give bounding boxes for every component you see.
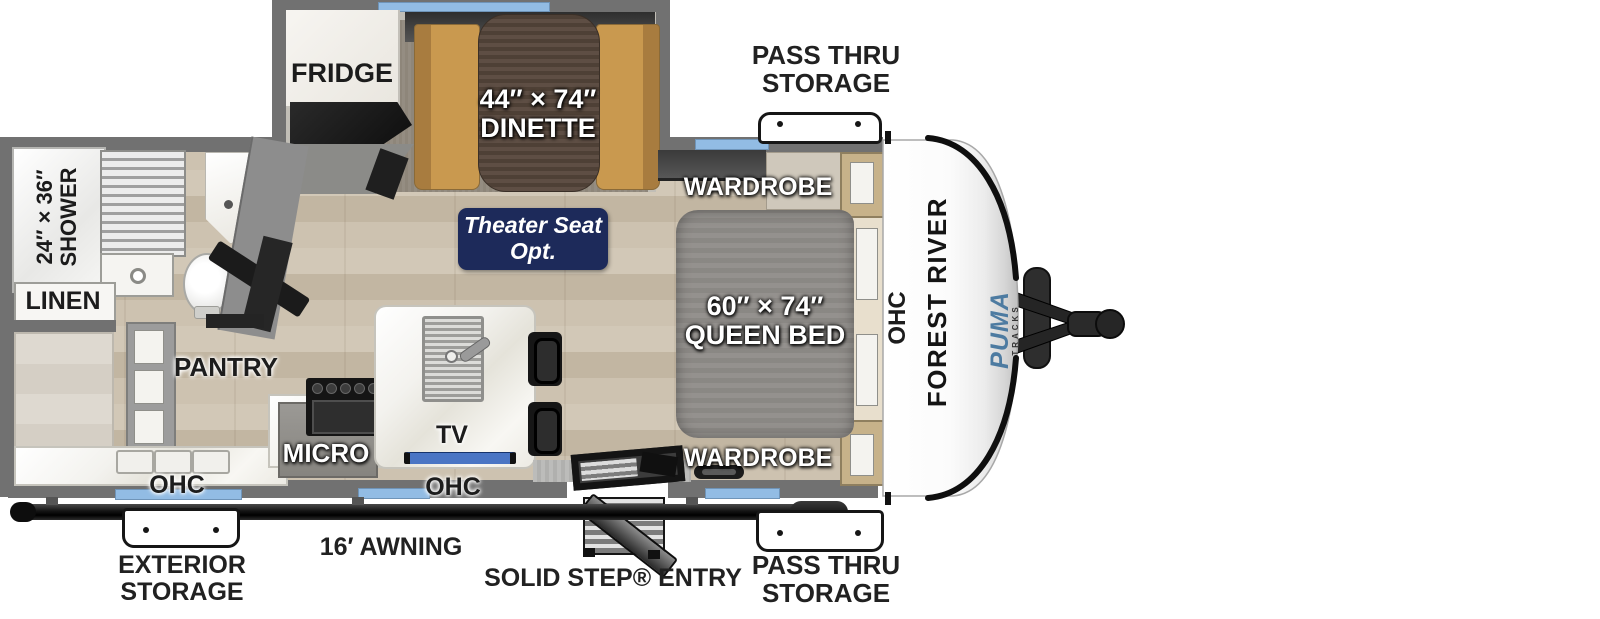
ohc-label-bedroom: OHC xyxy=(886,288,910,348)
hitch-coupler-knob xyxy=(1096,310,1124,338)
wardrobe-label-bottom: WARDROBE xyxy=(682,444,834,472)
step-well-treads xyxy=(580,458,637,481)
awning-text: 16′ AWNING xyxy=(320,534,463,561)
linen-text: LINEN xyxy=(26,288,101,315)
window-slideout xyxy=(378,2,550,12)
queen-name-text: QUEEN BED xyxy=(685,321,846,350)
shower-label: 24″ × 36″ SHOWER xyxy=(31,142,83,292)
forest-river-logo: FOREST RIVER xyxy=(922,177,952,427)
hitch-jack xyxy=(1024,268,1050,368)
awning-label: 16′ AWNING xyxy=(300,532,482,562)
solid-step-entry-label: SOLID STEP® ENTRY xyxy=(468,562,758,594)
awning-bar-left-cap xyxy=(10,502,36,522)
step-foot xyxy=(648,550,660,559)
exterior-storage-door xyxy=(122,508,240,548)
stove-burner xyxy=(340,383,351,394)
latch-dot xyxy=(777,121,783,127)
chair-cushion xyxy=(534,338,560,384)
pass-thru-door-bottom xyxy=(756,510,884,552)
island-chair xyxy=(528,402,562,456)
linen-label: LINEN xyxy=(14,286,112,316)
manufacturer-text: FOREST RIVER xyxy=(923,197,951,407)
step-well-flap xyxy=(639,452,678,477)
dinette-label: 44″ × 74″ DINETTE xyxy=(452,84,624,144)
latch-dot xyxy=(777,530,783,536)
micro-text: MICRO xyxy=(283,439,370,467)
exterior-storage-label: EXTERIOR STORAGE xyxy=(92,552,272,606)
pantry-label: PANTRY xyxy=(172,352,280,382)
bath-blinds-panel xyxy=(100,150,186,257)
wall-linen-divider xyxy=(10,320,116,332)
bath-cabinet-knob xyxy=(130,268,146,284)
pantry-cabinet xyxy=(126,322,176,456)
pantry-text: PANTRY xyxy=(174,353,278,381)
latch-dot xyxy=(213,527,219,533)
island-chair xyxy=(528,332,562,386)
chair-cushion xyxy=(534,408,560,454)
awning-mount-tab xyxy=(46,497,58,505)
step-foot xyxy=(583,548,595,557)
theater-seat-text-1: Theater Seat xyxy=(464,213,602,239)
sink-drain xyxy=(445,350,458,363)
series-text: TRACKS xyxy=(1012,304,1021,355)
ohc-text: OHC xyxy=(885,291,911,344)
fridge-label: FRIDGE xyxy=(288,58,396,90)
bath-vanity-drain xyxy=(224,200,233,209)
window-bottom-right xyxy=(705,488,780,499)
solid-step-text: SOLID STEP® ENTRY xyxy=(484,565,742,592)
ohc-text: OHC xyxy=(425,474,481,501)
awning-mount-tab xyxy=(352,497,364,505)
dinette-size-text: 44″ × 74″ xyxy=(480,85,597,114)
pantry-door xyxy=(134,410,164,444)
stove-burner xyxy=(354,383,365,394)
window-bottom-center xyxy=(358,488,430,499)
ohc-label-kitchen-left: OHC xyxy=(146,471,208,499)
tv-label: TV xyxy=(428,421,476,449)
theater-seat-option-badge: Theater Seat Opt. xyxy=(458,208,608,270)
ohc-text: OHC xyxy=(149,472,205,499)
floorplan-canvas: 44″ × 74″ DINETTE FRIDGE 24″ × 36″ SHOWE… xyxy=(0,0,1600,619)
stove-burner xyxy=(312,383,323,394)
latch-dot xyxy=(855,530,861,536)
latch-dot xyxy=(855,121,861,127)
cap-marker-bottom xyxy=(885,492,891,505)
stove-oven xyxy=(312,400,380,434)
wardrobe-text: WARDROBE xyxy=(684,445,833,472)
fridge-text: FRIDGE xyxy=(291,59,393,88)
tv-text: TV xyxy=(436,422,468,449)
wardrobe-text: WARDROBE xyxy=(684,174,833,201)
pass-thru-door-top xyxy=(758,112,882,144)
pass-thru-text-2: STORAGE xyxy=(762,69,890,97)
pass-thru-text-1: PASS THRU xyxy=(752,41,900,69)
exterior-storage-text-2: STORAGE xyxy=(120,579,243,606)
wardrobe-label-top: WARDROBE xyxy=(682,173,834,201)
tv-unit xyxy=(404,452,516,464)
pass-thru-text-1: PASS THRU xyxy=(752,551,900,579)
cap-marker-top xyxy=(885,131,891,144)
latch-dot xyxy=(143,527,149,533)
queen-bed-label: 60″ × 74″ QUEEN BED xyxy=(676,290,854,352)
shower-size-text: 24″ × 36″ xyxy=(33,169,57,264)
theater-seat-text-2: Opt. xyxy=(510,239,556,265)
stove-burner xyxy=(326,383,337,394)
pantry-door xyxy=(134,330,164,364)
bath-door-threshold xyxy=(206,314,264,328)
pass-thru-storage-label-top: PASS THRU STORAGE xyxy=(726,40,926,98)
micro-label: MICRO xyxy=(278,438,374,468)
dinette-name-text: DINETTE xyxy=(480,114,596,143)
awning-mount-tab xyxy=(686,497,698,505)
exterior-storage-text-1: EXTERIOR xyxy=(118,552,246,579)
stove xyxy=(306,378,382,436)
pass-thru-text-2: STORAGE xyxy=(762,579,890,607)
queen-size-text: 60″ × 74″ xyxy=(707,292,824,321)
ohc-label-kitchen-right: OHC xyxy=(422,473,484,501)
shower-name-text: SHOWER xyxy=(57,168,81,267)
pantry-door xyxy=(134,370,164,404)
puma-series-logo: TRACKS xyxy=(1010,295,1022,365)
